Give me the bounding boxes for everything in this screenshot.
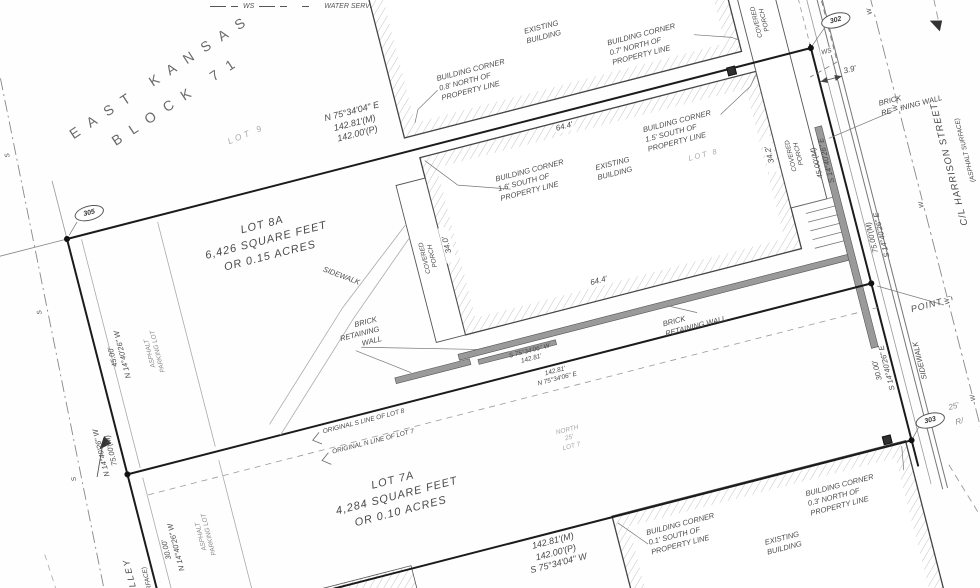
original-lot-line [148, 308, 877, 495]
arrow-left-icon [311, 432, 322, 446]
right-of-way-line [949, 458, 980, 546]
water-service-stub [796, 0, 810, 44]
arrow-left-icon [321, 453, 332, 467]
dim-3-9 [820, 73, 843, 84]
arrow-icon [930, 18, 945, 34]
survey-plat-page: WS WATER SERVICE LINE [0, 0, 980, 588]
line-extension [0, 239, 67, 258]
line-extension [52, 181, 66, 236]
